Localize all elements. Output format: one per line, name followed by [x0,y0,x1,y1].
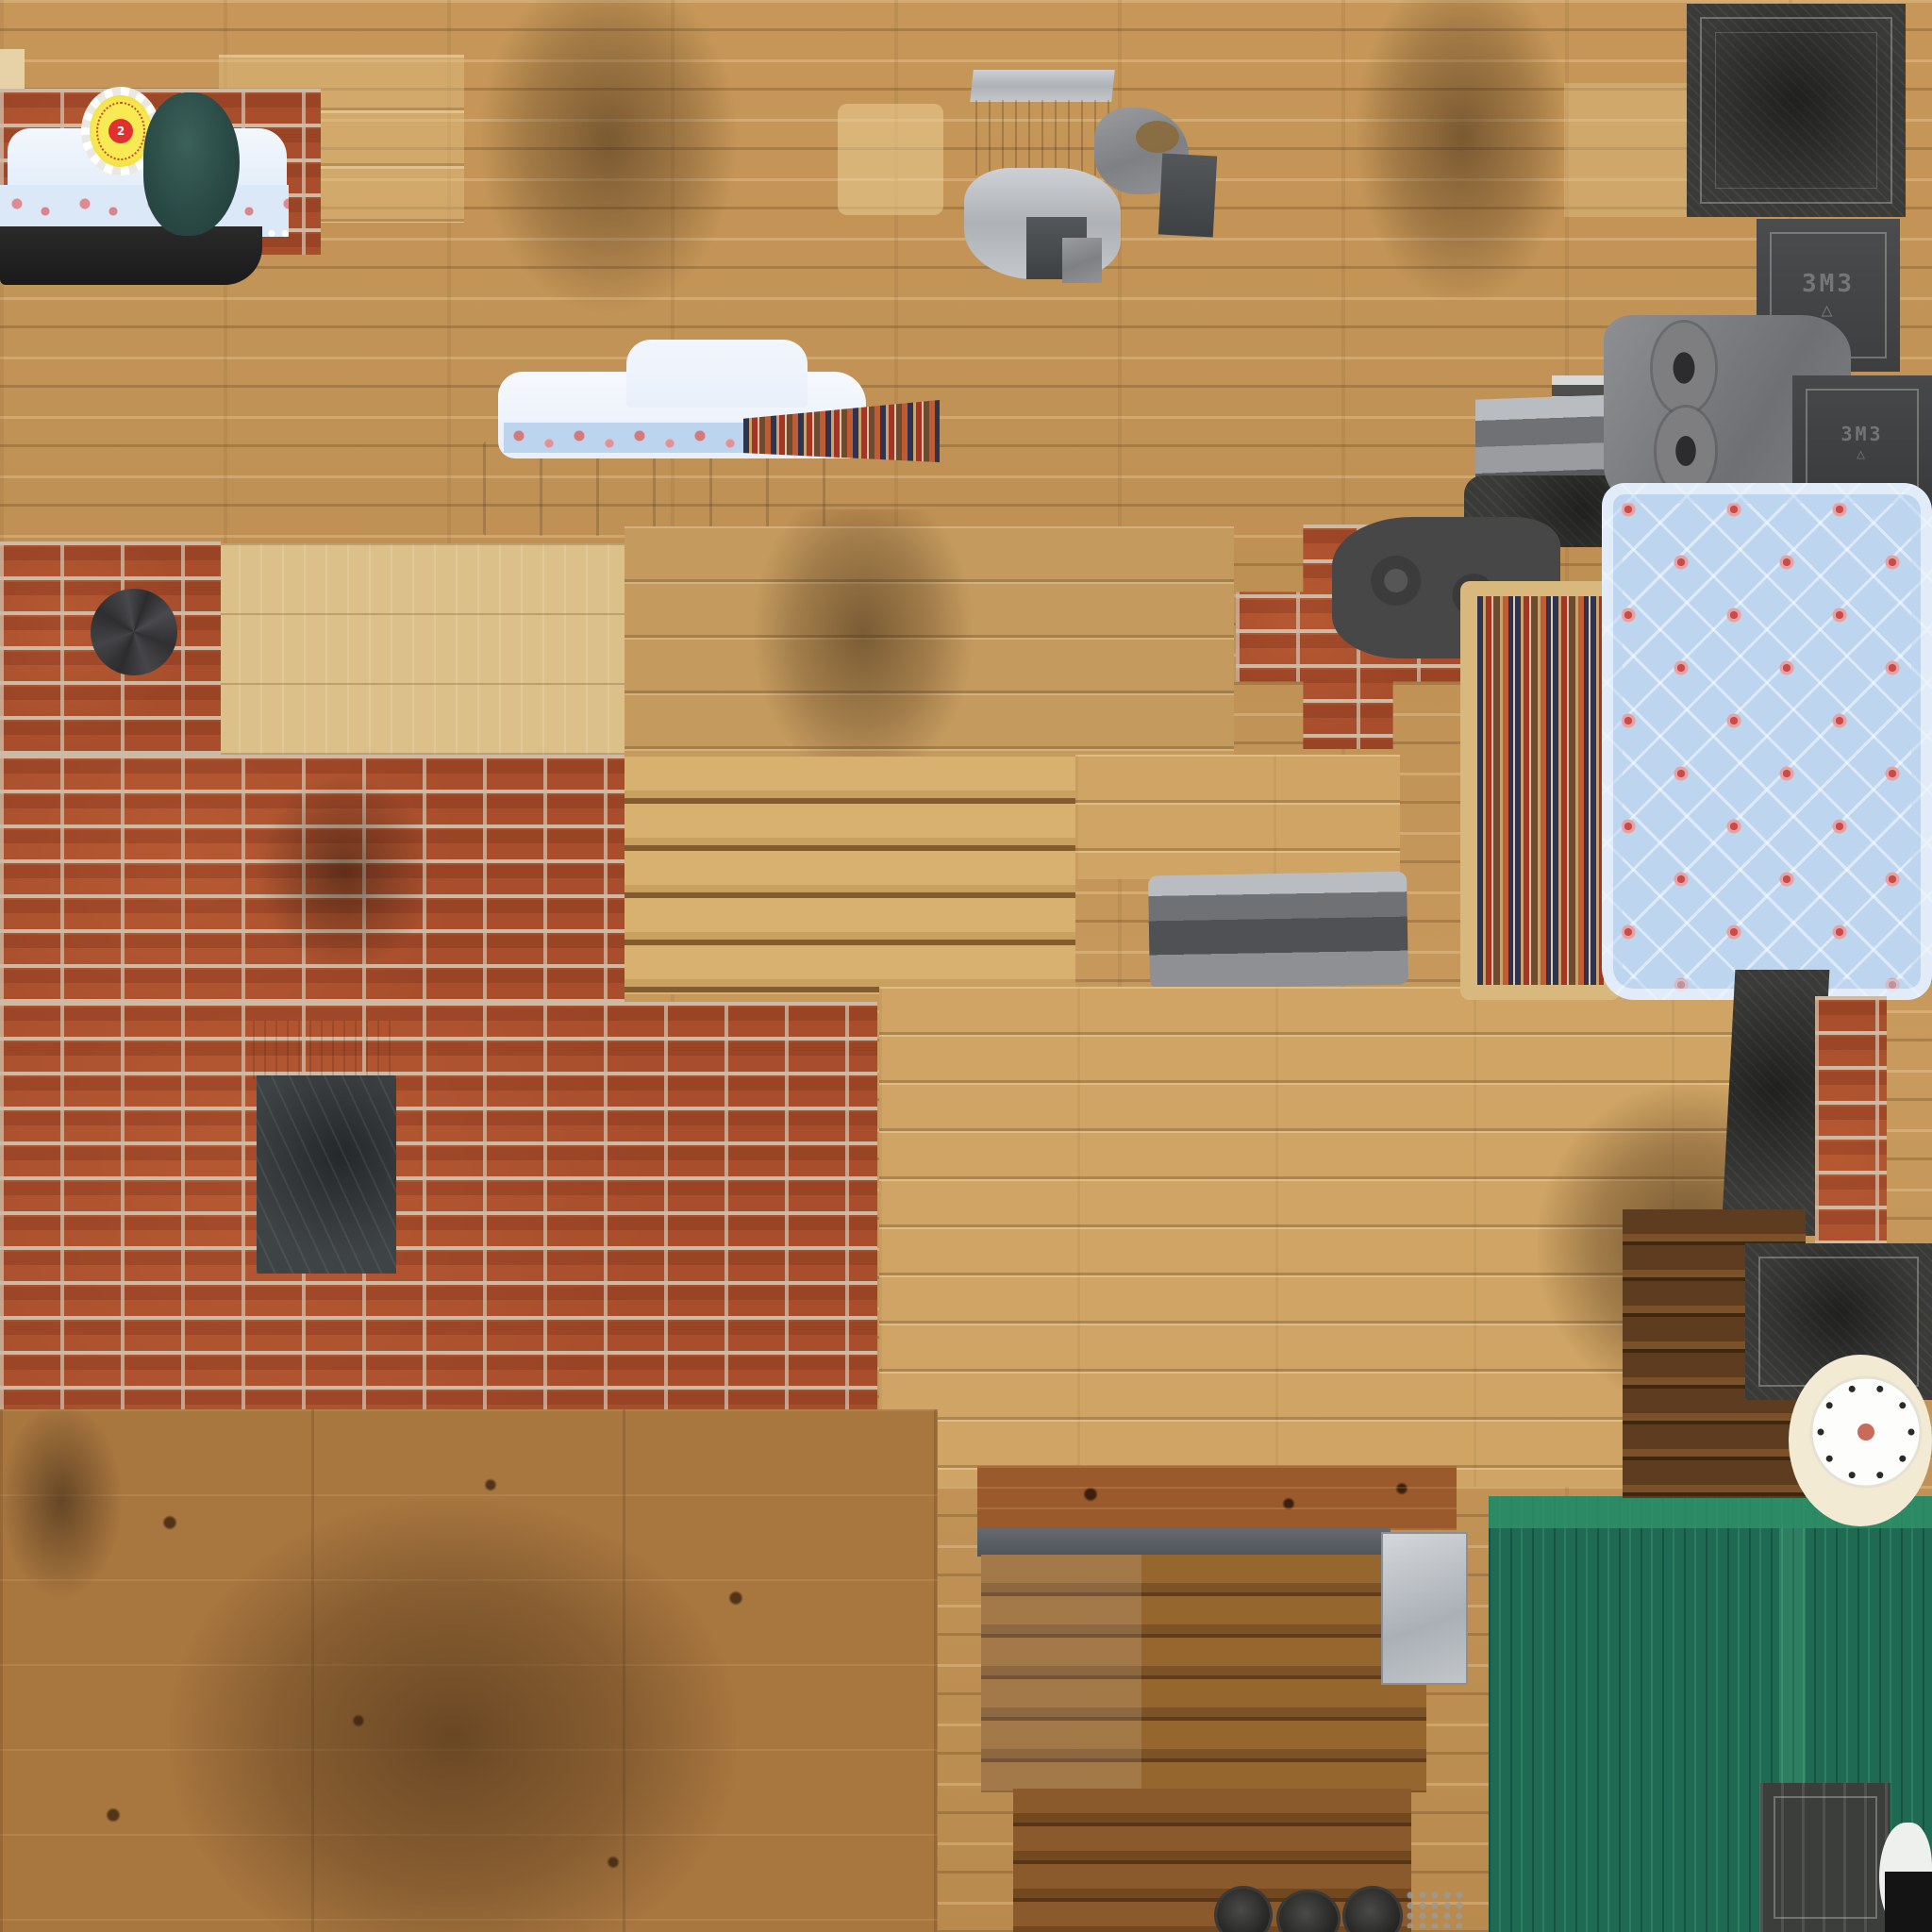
wood-patch [1564,83,1690,217]
metal-plate-dark [1158,154,1217,238]
soot-plate-top [253,1021,396,1079]
plank-wall [1075,755,1400,879]
crate-frame-inner [1715,32,1877,189]
wood-oval-inset [1136,121,1179,153]
metal-post [1062,238,1102,283]
burner-plate [1217,1889,1270,1932]
pine-board-panel [217,543,625,758]
soot-smudge [1357,0,1569,302]
metal-wedge [1722,970,1830,1236]
bed-base-dark [0,226,262,285]
triangle-mark: △ [1821,300,1835,319]
galvanized-box [1381,1532,1468,1685]
wood-shelf-board [975,100,1113,175]
ribbed-crate [1760,1783,1890,1932]
empty-corner [1885,1872,1932,1932]
furniture-top-board [977,1466,1457,1530]
clock-center [1857,1424,1874,1441]
burner-disc [1653,323,1715,413]
rosette-center: 2 [108,119,133,143]
clock-face [1807,1374,1924,1491]
rose-quilt [1602,483,1932,1000]
soot-shield-plate [257,1075,396,1274]
texture-atlas: 2 3M3 △ 3M3 △ [0,0,1932,1932]
soot-smudge [255,774,434,972]
metal-trough [1148,872,1408,990]
bed-pillow [626,340,808,408]
rosette-center-mark: 2 [117,125,125,138]
dark-stain [170,1500,736,1932]
ammo-crate-lid [1687,4,1906,217]
smoked-plank-wall [625,526,1234,758]
wood-notch [838,104,943,215]
rag-rug [1460,581,1621,1000]
soot-smudge [0,1402,123,1600]
chest-of-drawers [981,1555,1426,1792]
stovepipe-cap [91,589,177,675]
rug-stripes [1477,596,1604,985]
furniture-gray-rail [977,1528,1391,1557]
burner-plate [1345,1889,1400,1932]
soot-smudge [481,0,736,311]
triangle-mark: △ [1857,447,1868,461]
stencil-label: 3M3 [1802,272,1855,296]
stove-burner-row [1211,1885,1472,1932]
metal-slab [970,70,1115,102]
chain-links [1406,1890,1468,1928]
burner-disc [1657,408,1715,494]
stencil-label: 3M3 [1840,425,1883,443]
burner-plate [1279,1892,1338,1932]
brick-wall [0,1002,877,1428]
wooden-staircase [625,757,1075,994]
crate-frame [1774,1796,1877,1919]
